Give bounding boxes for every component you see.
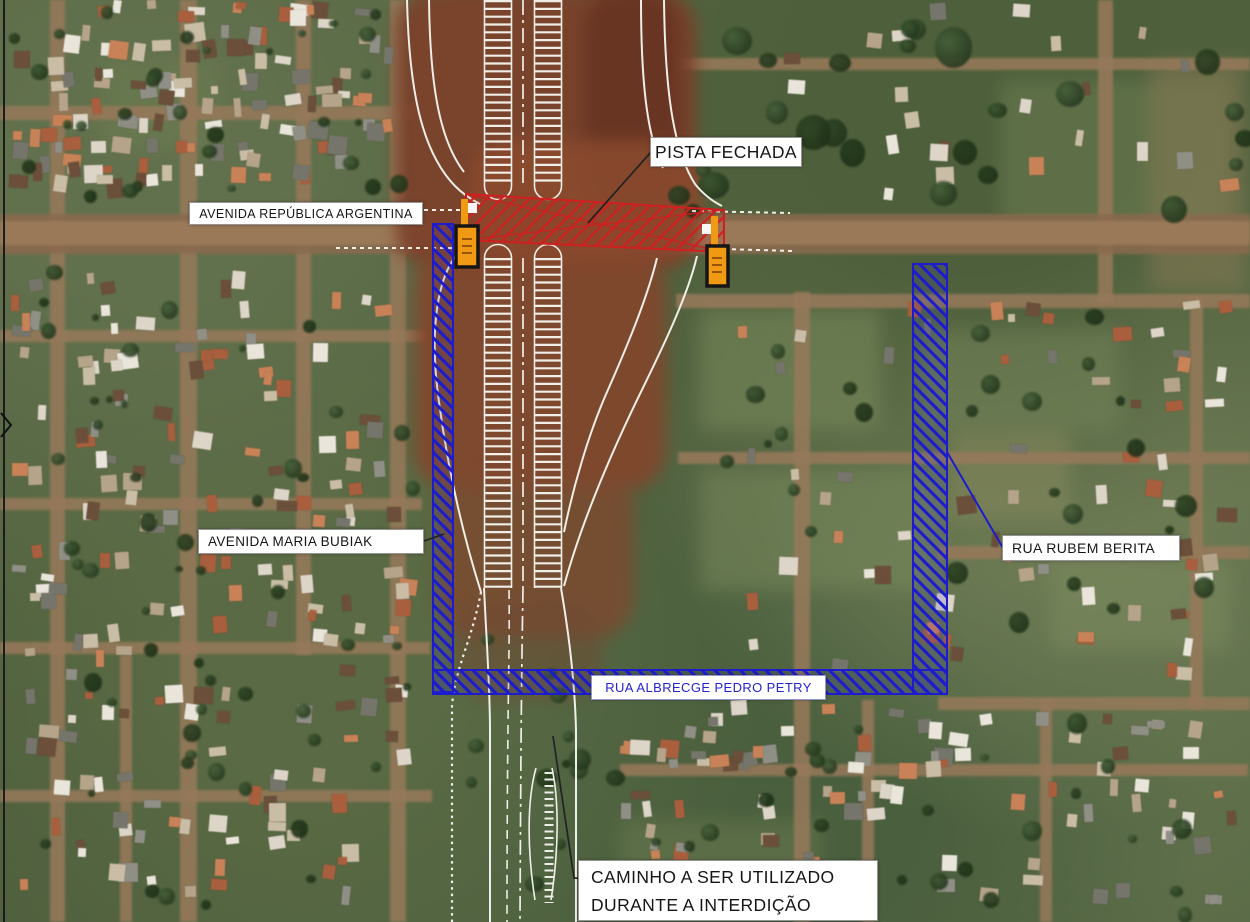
sign-marker-framed-icon (707, 246, 728, 286)
plan-annotation-overlay (0, 0, 1250, 922)
label-pista-fechada: PISTA FECHADA (650, 137, 802, 167)
south-roadway-lines (452, 588, 576, 922)
label-avenida-republica-argentina: AVENIDA REPÚBLICA ARGENTINA (189, 202, 423, 225)
caminho-line-1: CAMINHO A SER UTILIZADO (591, 863, 835, 891)
label-caminho-interdicao: CAMINHO A SER UTILIZADO DURANTE A INTERD… (578, 860, 878, 921)
carriageway-marking-left (485, 0, 512, 588)
detour-path-right (913, 264, 947, 694)
sign-white-panel (702, 224, 711, 234)
sign-white-panel (468, 203, 477, 213)
detour-route (433, 224, 1003, 694)
detour-path-left (433, 224, 453, 692)
drawing-frame (1, 0, 11, 922)
label-rua-albrecge-pedro-petry: RUA ALBRECGE PEDRO PETRY (591, 675, 826, 700)
highway-centerline (520, 0, 523, 922)
junction-flare-edges (407, 0, 722, 592)
sign-marker-icon (711, 216, 718, 246)
frame-edge-arrow-icon (1, 413, 11, 437)
label-rua-rubem-berita: RUA RUBEM BERITA (1002, 535, 1180, 561)
detour-plan-map: PISTA FECHADA AVENIDA REPÚBLICA ARGENTIN… (0, 0, 1250, 922)
carriageway-marking-right (535, 0, 562, 588)
caminho-leader-line (553, 736, 586, 879)
sign-marker-icon (461, 199, 468, 226)
rubem-berita-leader-line (947, 452, 1003, 548)
caminho-line-2: DURANTE A INTERDIÇÃO (591, 891, 811, 919)
label-avenida-maria-bubiak: AVENIDA MARIA BUBIAK (198, 529, 424, 554)
closed-lane-hatch-area (466, 194, 724, 252)
